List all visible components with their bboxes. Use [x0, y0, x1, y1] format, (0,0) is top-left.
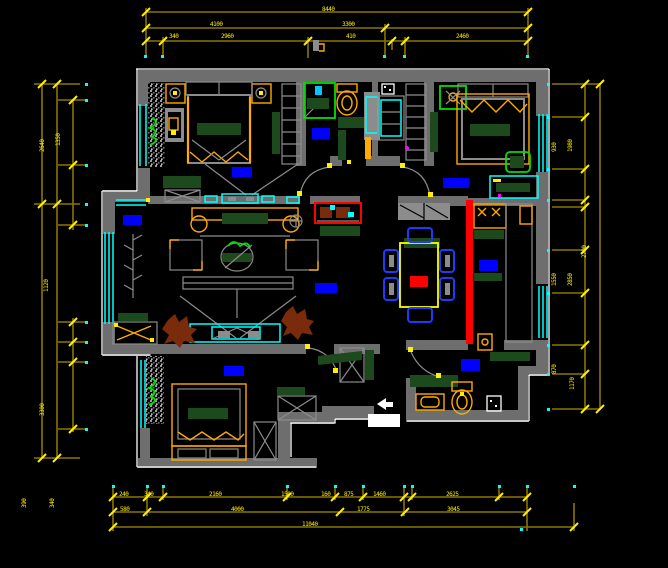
floor-drain: [487, 396, 501, 411]
chair: [408, 308, 432, 322]
room-label: [224, 366, 244, 376]
section-marker: [313, 40, 319, 51]
living-room: [113, 208, 337, 348]
bench: [163, 176, 201, 188]
bed-linen: [188, 408, 228, 419]
dining-table: [400, 243, 438, 307]
room-label: [315, 283, 337, 293]
bathroom: [304, 83, 380, 160]
bed-fold: [190, 152, 248, 162]
bed-linen: [470, 124, 510, 136]
radiator: [124, 234, 142, 298]
bath-counter: [410, 375, 458, 387]
cad-canvas[interactable]: 8440 4100 3300 340 2960 410 2460 2640 13…: [0, 0, 668, 568]
tv-view-lines: [180, 296, 296, 338]
door-arc: [300, 167, 329, 195]
room-label: [479, 260, 498, 271]
dining-room: [384, 203, 454, 322]
shower-head-icon: [315, 86, 322, 95]
room-label: [443, 178, 469, 188]
armchair: [286, 240, 318, 270]
table-runner: [410, 276, 428, 287]
room-label: [123, 215, 142, 225]
entrance-arrow-icon: [377, 398, 393, 410]
sofa-arm: [191, 216, 207, 232]
floor-plan-svg: [0, 0, 668, 568]
highlighted-wall: [466, 200, 473, 344]
door-leaf: [365, 137, 371, 159]
vent-box: [382, 84, 394, 94]
sink: [520, 206, 532, 224]
armchair: [170, 240, 202, 270]
decor-hatch-wall: [146, 356, 164, 424]
door-arc: [411, 352, 440, 377]
bedroom-top-right: [440, 84, 538, 198]
marker-dot: [406, 147, 409, 150]
water-heater: [478, 334, 492, 350]
marker-dot: [498, 194, 501, 197]
room-label: [232, 167, 252, 177]
bed-linen: [197, 123, 241, 135]
room-label: [461, 359, 480, 371]
master-bedroom: [148, 82, 301, 203]
cabinet: [378, 96, 404, 140]
door-arc: [403, 167, 430, 196]
kitchen: [466, 200, 532, 361]
entrance-mark: [368, 414, 400, 427]
toilet: [337, 91, 357, 115]
decor-hatch-wall: [148, 83, 165, 167]
sofa-cushion: [222, 213, 268, 224]
bed-fold: [460, 100, 527, 112]
plant: [162, 314, 197, 348]
hallway: [300, 147, 430, 372]
room-label: [312, 128, 330, 139]
plant: [281, 306, 314, 340]
